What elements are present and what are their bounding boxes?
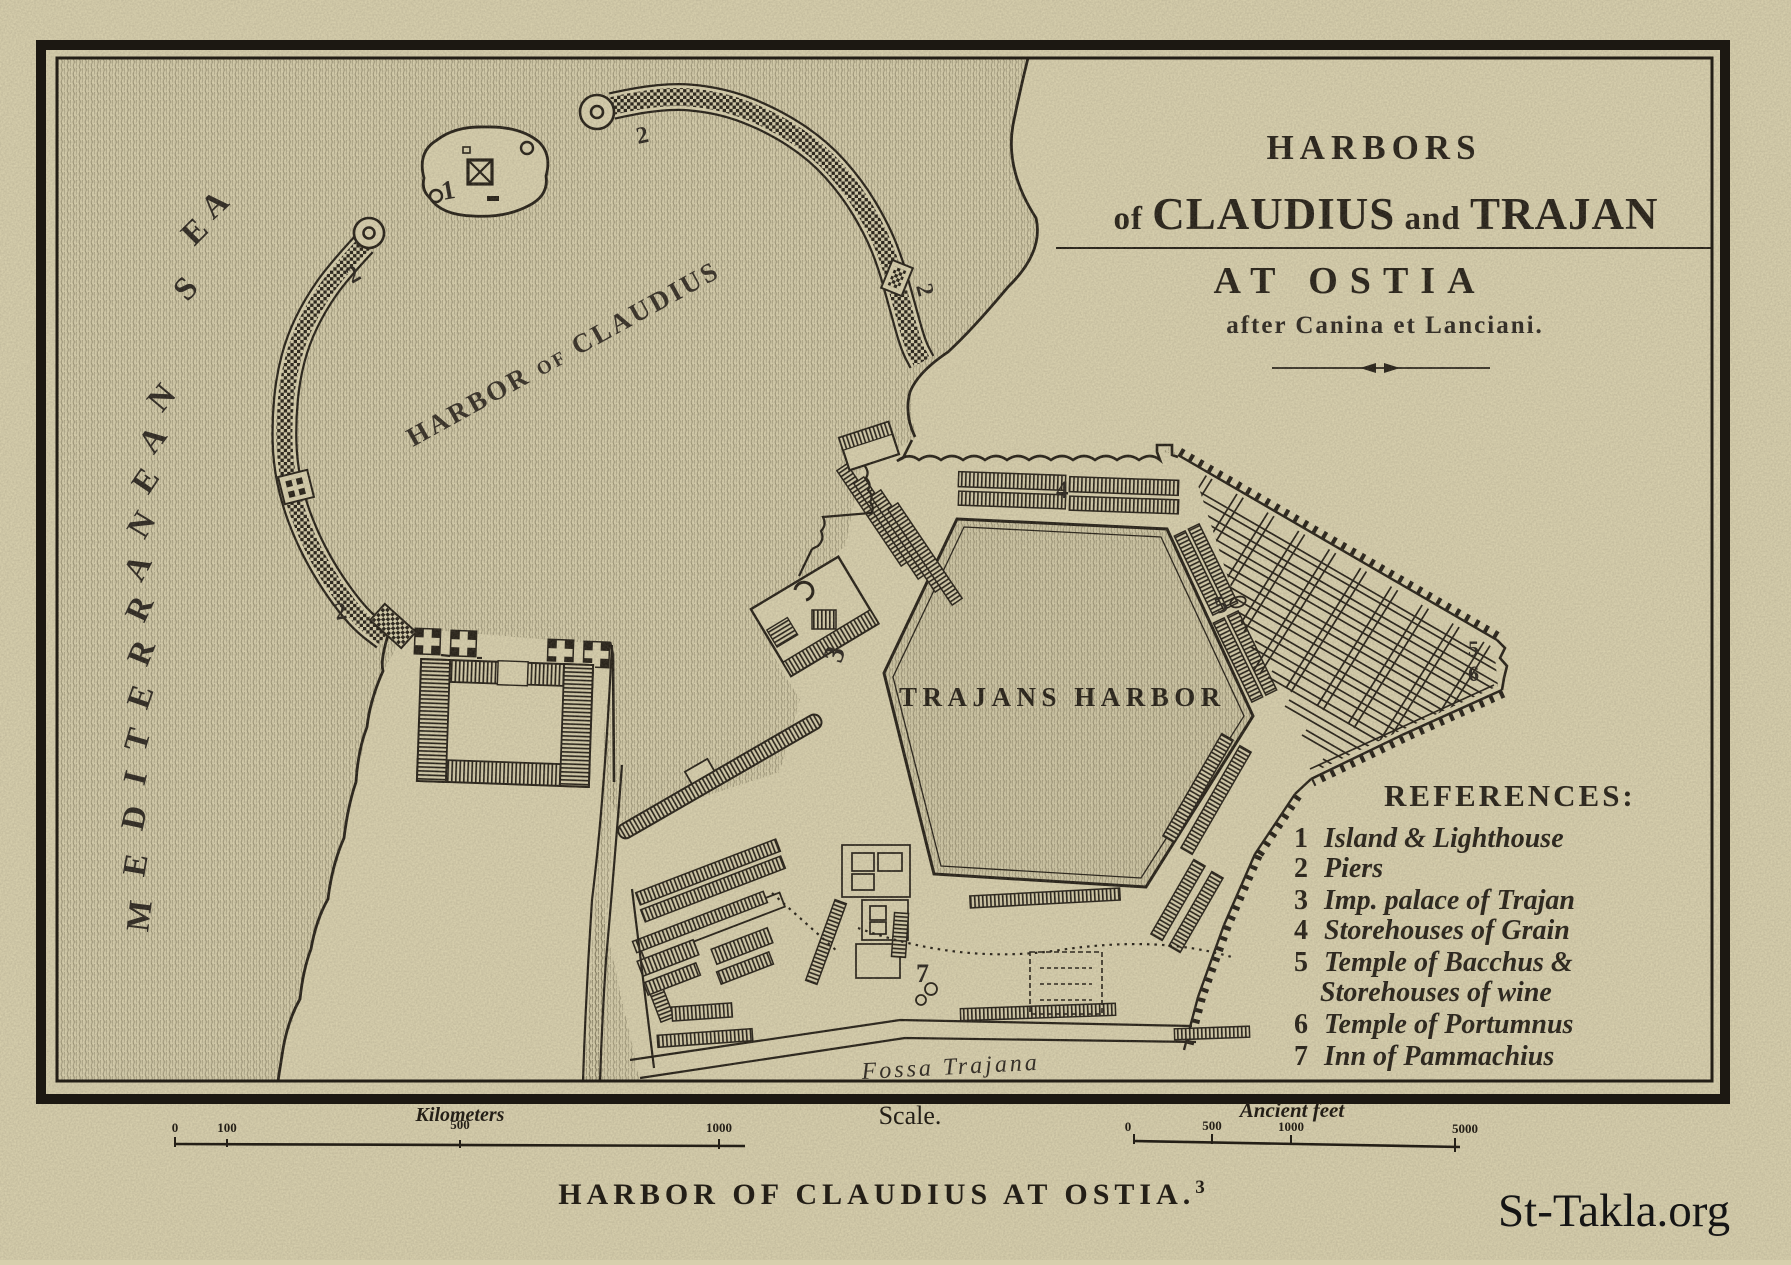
svg-text:1000: 1000 [706,1120,732,1135]
svg-text:Scale.: Scale. [879,1101,942,1130]
svg-text:1000: 1000 [1278,1119,1304,1134]
svg-text:5000: 5000 [1452,1121,1478,1136]
svg-text:100: 100 [217,1120,237,1135]
svg-text:0: 0 [1125,1119,1132,1134]
svg-text:0: 0 [172,1120,179,1135]
svg-text:HARBOR OF CLAUDIUS AT OSTIA.3: HARBOR OF CLAUDIUS AT OSTIA.3 [558,1177,1210,1211]
svg-text:500: 500 [1202,1118,1222,1133]
svg-text:St-Takla.org: St-Takla.org [1498,1185,1730,1237]
svg-text:500: 500 [450,1117,470,1132]
